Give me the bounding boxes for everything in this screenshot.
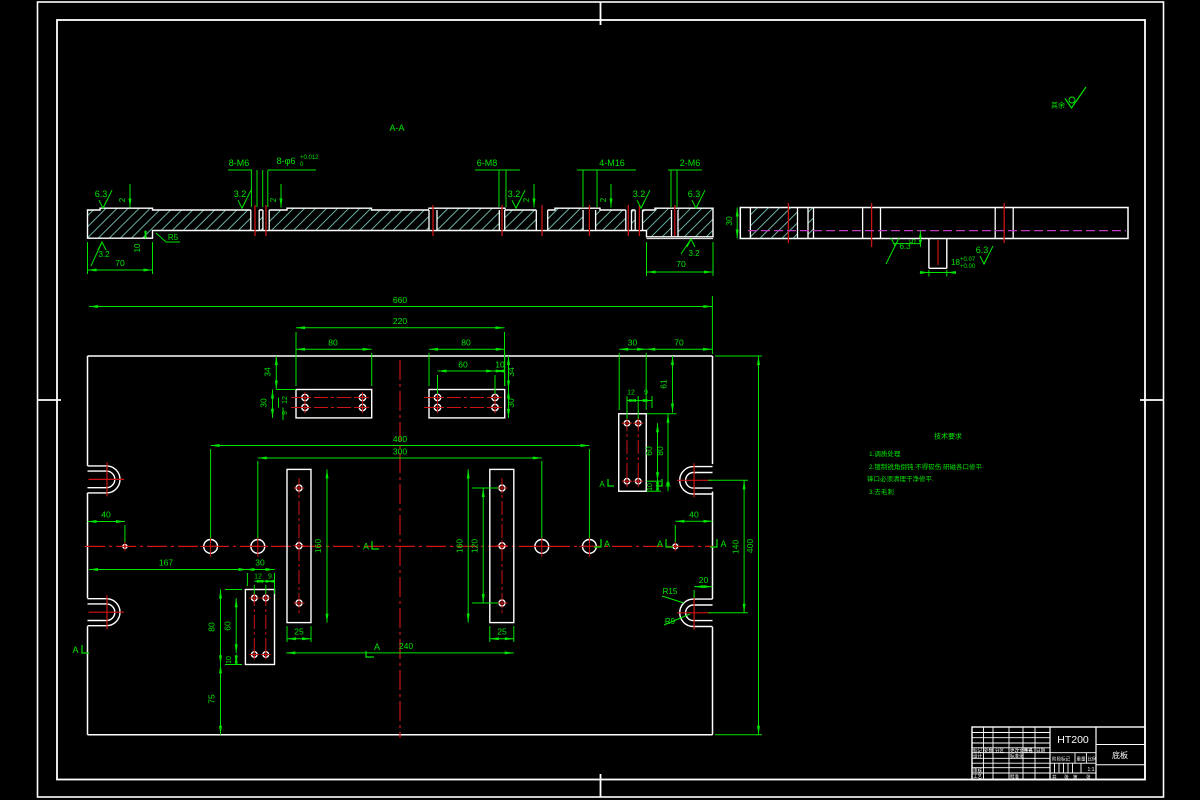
- svg-text:80: 80: [207, 622, 217, 632]
- svg-text:6.3: 6.3: [976, 245, 989, 255]
- svg-text:底板: 底板: [1112, 750, 1128, 760]
- svg-text:A: A: [665, 480, 671, 489]
- svg-text:240: 240: [399, 641, 413, 651]
- svg-text:1.调质处理: 1.调质处理: [869, 449, 901, 458]
- svg-text:8-φ6: 8-φ6: [277, 156, 296, 166]
- svg-text:A: A: [72, 645, 78, 655]
- svg-text:分区: 分区: [995, 747, 1004, 754]
- svg-text:70: 70: [115, 258, 125, 268]
- svg-text:2: 2: [599, 197, 608, 202]
- svg-text:6-M8: 6-M8: [477, 158, 498, 168]
- svg-text:20: 20: [699, 575, 709, 585]
- svg-text:3.2: 3.2: [234, 189, 247, 199]
- svg-text:300: 300: [393, 447, 407, 457]
- svg-text:10: 10: [647, 483, 654, 491]
- svg-text:A: A: [374, 642, 380, 652]
- svg-text:30: 30: [724, 216, 734, 226]
- svg-text:3.去毛刺: 3.去毛刺: [869, 487, 894, 496]
- svg-text:A: A: [657, 539, 663, 549]
- svg-text:167: 167: [159, 558, 173, 568]
- svg-text:660: 660: [393, 295, 407, 305]
- svg-text:140: 140: [731, 540, 741, 554]
- svg-text:30: 30: [259, 398, 269, 408]
- svg-text:重量: 重量: [1077, 756, 1086, 763]
- svg-text:12: 12: [627, 390, 635, 397]
- svg-text:处数: 处数: [984, 747, 993, 754]
- svg-text:共: 共: [1052, 774, 1057, 781]
- svg-text:张: 张: [1064, 774, 1069, 781]
- svg-text:8-M6: 8-M6: [229, 158, 250, 168]
- svg-text:30: 30: [506, 398, 516, 408]
- svg-text:220: 220: [393, 316, 407, 326]
- svg-text:+0.012: +0.012: [300, 155, 319, 161]
- svg-text:3.2: 3.2: [633, 189, 646, 199]
- svg-text:第: 第: [1073, 774, 1078, 781]
- svg-text:80: 80: [655, 446, 665, 456]
- svg-text:60: 60: [223, 621, 233, 631]
- svg-text:其余: 其余: [1051, 101, 1065, 110]
- svg-text:比例: 比例: [1088, 756, 1097, 763]
- svg-text:工艺: 工艺: [973, 774, 982, 779]
- svg-text:3.2: 3.2: [98, 250, 110, 259]
- svg-text:10: 10: [133, 243, 142, 252]
- svg-text:120: 120: [470, 539, 480, 553]
- svg-text:80: 80: [461, 338, 471, 348]
- svg-text:1:1: 1:1: [1088, 767, 1095, 773]
- svg-text:2-M6: 2-M6: [680, 158, 701, 168]
- svg-text:R9: R9: [665, 617, 676, 626]
- svg-text:160: 160: [455, 539, 465, 553]
- svg-text:80: 80: [328, 338, 338, 348]
- svg-text:R15: R15: [663, 587, 678, 596]
- svg-text:60: 60: [644, 446, 654, 456]
- svg-text:10: 10: [226, 656, 233, 664]
- svg-text:5: 5: [909, 238, 918, 243]
- svg-text:技术要求: 技术要求: [934, 432, 962, 441]
- svg-text:4-M16: 4-M16: [599, 158, 625, 168]
- svg-text:12: 12: [254, 574, 262, 581]
- svg-text:A: A: [599, 480, 605, 489]
- svg-text:34: 34: [506, 367, 516, 377]
- svg-text:61: 61: [659, 379, 669, 389]
- svg-text:25: 25: [497, 627, 507, 637]
- svg-text:标准化: 标准化: [1010, 753, 1024, 760]
- svg-text:A-A: A-A: [389, 123, 404, 133]
- svg-text:2: 2: [522, 197, 531, 202]
- svg-text:30: 30: [628, 338, 638, 348]
- svg-text:R5: R5: [168, 233, 179, 242]
- svg-text:400: 400: [745, 539, 755, 553]
- svg-text:30: 30: [255, 558, 265, 568]
- svg-text:A: A: [604, 539, 610, 549]
- svg-text:+0.00: +0.00: [960, 264, 976, 270]
- svg-text:34: 34: [263, 367, 273, 377]
- svg-text:75: 75: [207, 694, 217, 704]
- svg-text:10: 10: [495, 360, 505, 370]
- svg-text:40: 40: [101, 510, 111, 520]
- svg-text:9: 9: [268, 574, 272, 581]
- svg-text:设计: 设计: [973, 753, 982, 760]
- svg-text:6.3: 6.3: [95, 189, 108, 199]
- svg-text:阶段标记: 阶段标记: [1052, 756, 1070, 763]
- svg-text:3.2: 3.2: [688, 249, 700, 258]
- svg-text:6.3: 6.3: [688, 189, 701, 199]
- svg-text:2.镀制锐角倒钝 不得砹伤 研磁各口修平: 2.镀制锐角倒钝 不得砹伤 研磁各口修平: [869, 462, 983, 471]
- svg-text:25: 25: [294, 627, 304, 637]
- svg-text:张: 张: [1086, 774, 1091, 781]
- svg-text:锋口必须清理干净修平.: 锋口必须清理干净修平.: [867, 474, 934, 483]
- svg-text:+0.07: +0.07: [960, 257, 976, 263]
- svg-text:审核: 审核: [973, 767, 982, 774]
- svg-text:HT200: HT200: [1057, 734, 1089, 746]
- svg-text:9: 9: [282, 411, 289, 415]
- svg-text:批准: 批准: [1010, 773, 1019, 780]
- svg-text:9: 9: [644, 390, 648, 397]
- svg-text:签名: 签名: [1024, 747, 1033, 754]
- svg-text:A: A: [363, 542, 369, 552]
- svg-text:2: 2: [118, 197, 127, 202]
- svg-text:3.2: 3.2: [508, 189, 521, 199]
- svg-text:40: 40: [689, 510, 699, 520]
- svg-text:70: 70: [676, 259, 686, 269]
- svg-text:70: 70: [674, 338, 684, 348]
- svg-text:12: 12: [282, 396, 289, 404]
- svg-text:160: 160: [313, 539, 323, 553]
- svg-text:2: 2: [269, 197, 278, 202]
- svg-text:400: 400: [393, 434, 407, 444]
- svg-text:A: A: [720, 539, 726, 549]
- svg-text:60: 60: [458, 360, 468, 370]
